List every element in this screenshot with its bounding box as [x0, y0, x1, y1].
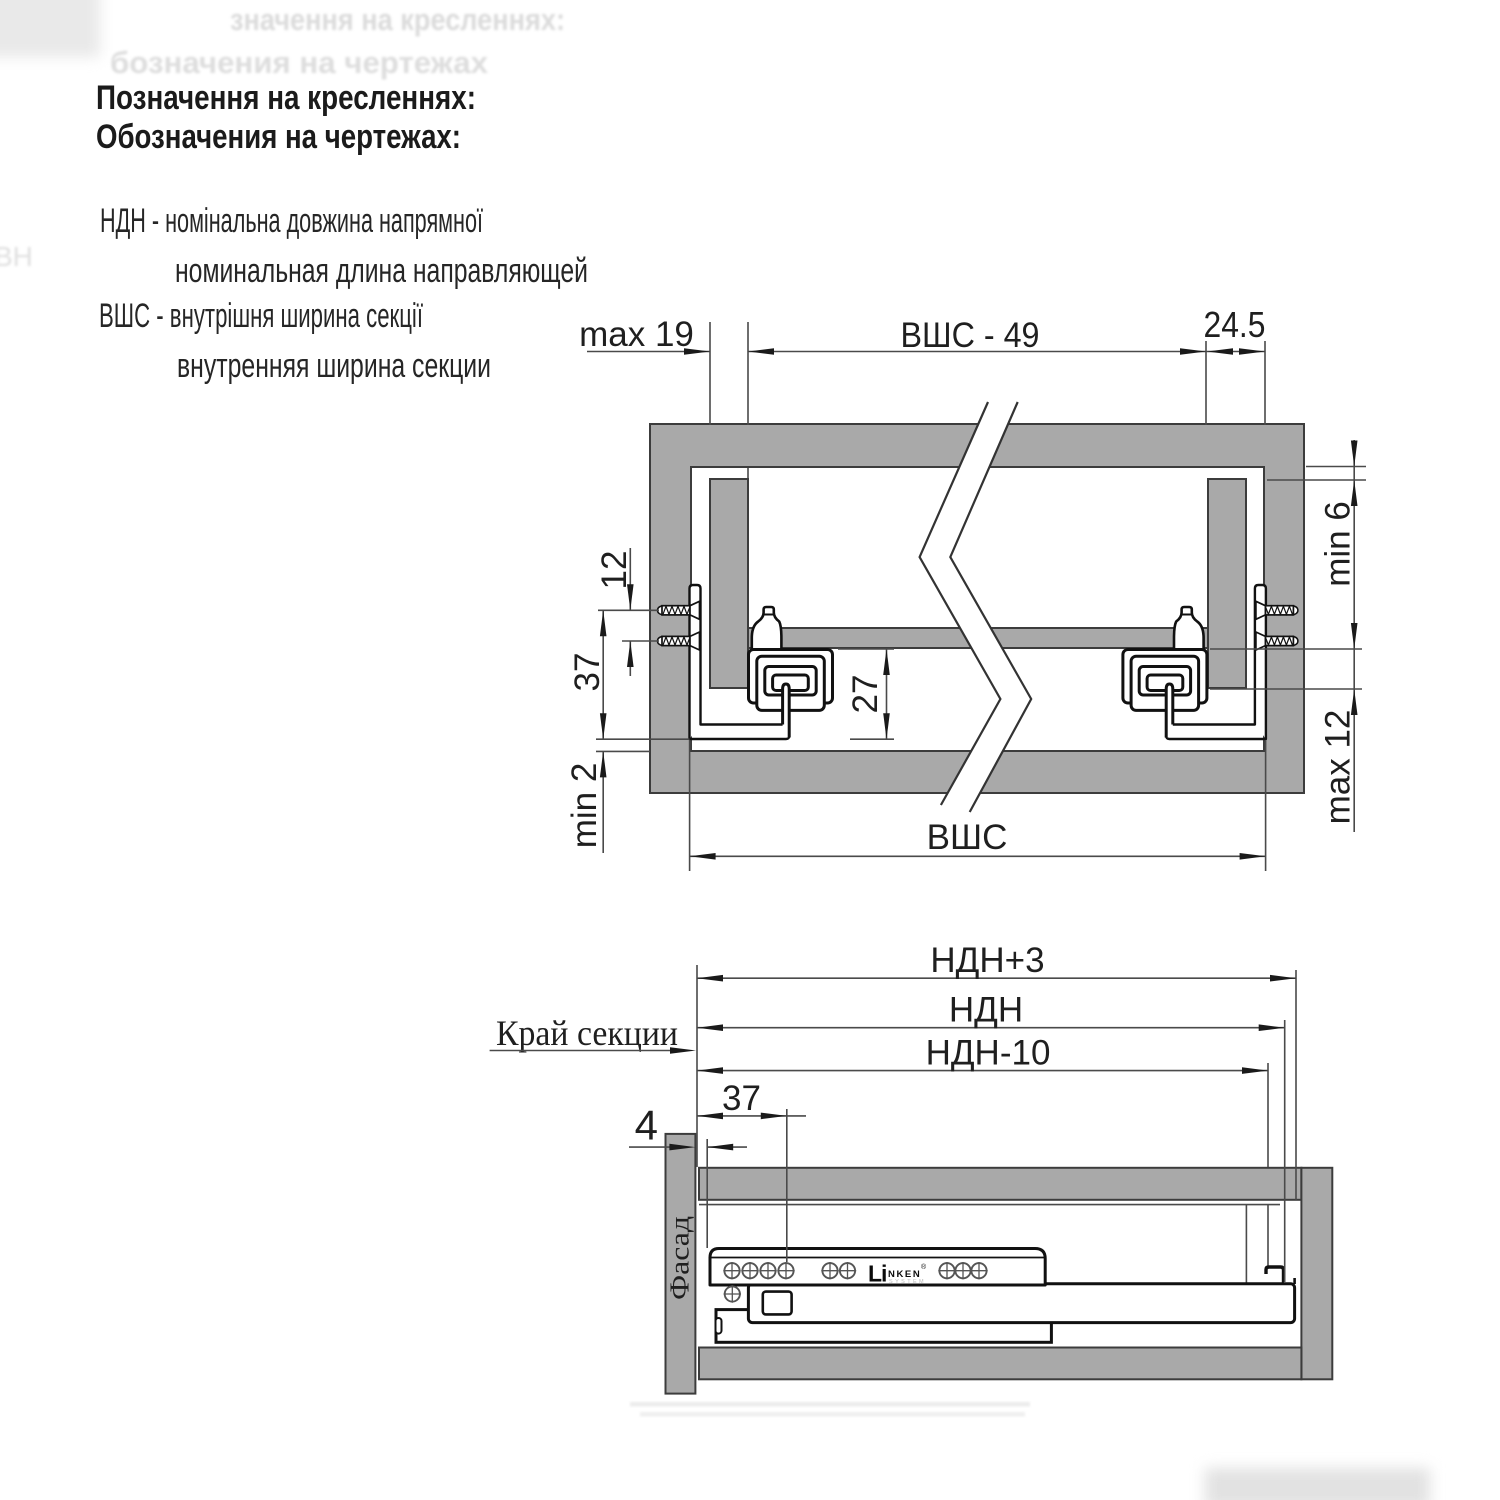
svg-text:12: 12 [595, 551, 634, 590]
svg-text:ВН: ВН [0, 241, 33, 272]
svg-text:min 6: min 6 [1319, 501, 1358, 587]
svg-text:внутренняя ширина секции: внутренняя ширина секции [177, 347, 491, 385]
svg-text:Фасад: Фасад [665, 1216, 695, 1300]
svg-text:ВШС - 49: ВШС - 49 [901, 316, 1040, 355]
svg-text:SYSTEM: SYSTEM [889, 1279, 926, 1285]
svg-text:Обозначения на чертежах:: Обозначения на чертежах: [96, 118, 461, 156]
svg-text:номинальная длина направляющей: номинальная длина направляющей [175, 252, 588, 290]
svg-text:значення на кресленнях:: значення на кресленнях: [230, 2, 565, 37]
svg-text:НДН+3: НДН+3 [930, 941, 1044, 980]
svg-text:Li: Li [868, 1261, 886, 1287]
svg-text:max 19: max 19 [579, 315, 694, 354]
svg-text:НДН - номінальна довжина напря: НДН - номінальна довжина напрямної [100, 202, 483, 240]
svg-text:37: 37 [722, 1079, 761, 1118]
svg-text:27: 27 [846, 675, 885, 714]
svg-text:ВШС - внутрішня ширина секції: ВШС - внутрішня ширина секції [99, 297, 423, 335]
svg-text:max 12: max 12 [1319, 710, 1358, 825]
svg-text:37: 37 [568, 653, 607, 692]
svg-text:®: ® [921, 1263, 927, 1271]
svg-text:бозначения на чертежах: бозначения на чертежах [110, 45, 489, 80]
svg-text:НДН-10: НДН-10 [926, 1034, 1051, 1073]
svg-text:НДН: НДН [949, 991, 1023, 1030]
svg-text:min 2: min 2 [565, 763, 604, 849]
svg-text:ВШС: ВШС [927, 818, 1008, 857]
svg-text:24.5: 24.5 [1204, 304, 1266, 345]
svg-text:4: 4 [635, 1102, 658, 1149]
svg-text:Позначення на кресленнях:: Позначення на кресленнях: [96, 79, 476, 117]
svg-text:Край секции: Край секции [496, 1013, 678, 1053]
